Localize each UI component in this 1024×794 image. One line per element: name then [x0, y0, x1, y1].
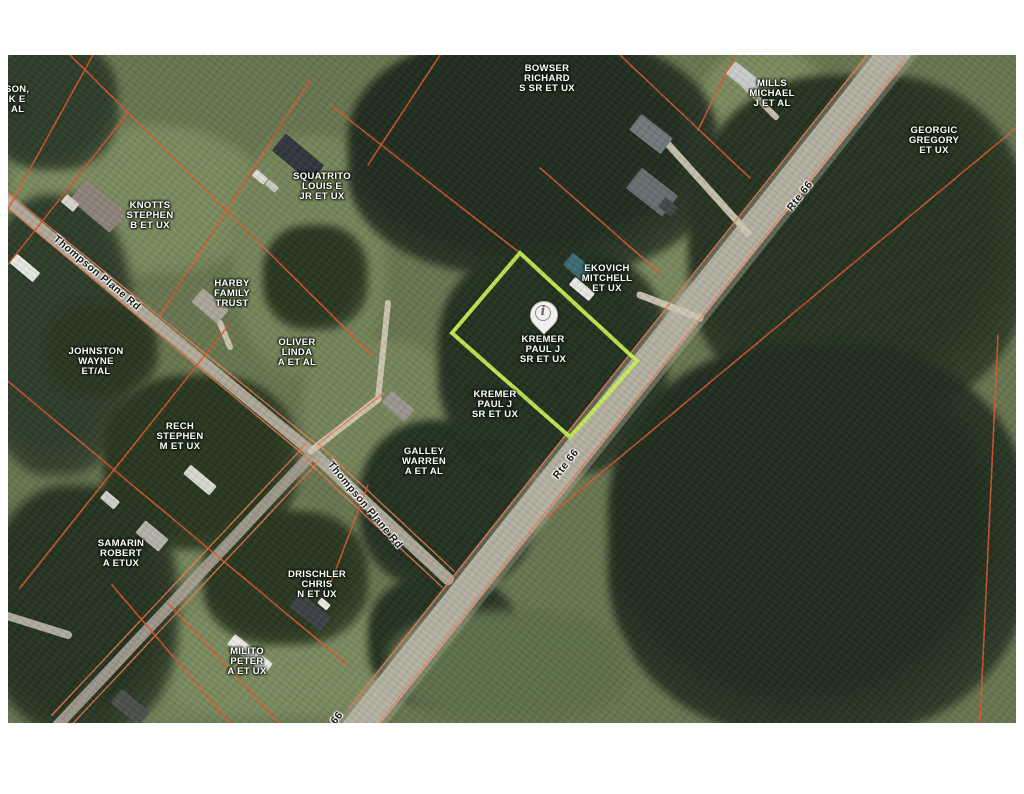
- owner-label-knotts: KNOTTSSTEPHENB ET UX: [127, 201, 174, 231]
- owner-label-samarin: SAMARINROBERTA ETUX: [98, 539, 144, 569]
- owner-label-oliver: OLIVERLINDAA ET AL: [278, 338, 316, 368]
- owner-label-bowser: BOWSERRICHARDS SR ET UX: [519, 64, 575, 94]
- building-squatrito-car-1: [252, 169, 269, 185]
- building-bowser-house-1: [629, 114, 673, 154]
- road-stub-northeast: [311, 399, 378, 451]
- parcel-boundary-line-6: [330, 105, 520, 253]
- road-bowser-driveway: [658, 133, 748, 233]
- road-oliver-driveway: [378, 303, 388, 399]
- road-edge-line-8: [317, 393, 384, 445]
- parcel-boundary-line-12: [368, 55, 440, 165]
- road-thompson-upper: [8, 193, 313, 453]
- owner-label-mills: MILLSMICHAELJ ET AL: [749, 79, 794, 109]
- building-squatrito-car-2: [265, 179, 279, 193]
- owner-label-harby: HARBYFAMILYTRUST: [214, 279, 250, 309]
- building-rech-mobile-home: [183, 464, 217, 495]
- owner-label-johnston: JOHNSTONWAYNEET/AL: [68, 347, 123, 377]
- building-southwest-house: [110, 689, 149, 723]
- road-west-spur: [8, 613, 68, 635]
- parcel-boundary-line-9: [698, 55, 735, 130]
- owner-label-kremer-pin: KREMERPAUL JSR ET UX: [520, 335, 566, 365]
- building-shed: [100, 490, 120, 509]
- building-johnston-trailer: [10, 254, 41, 282]
- owner-label-kremer-2: KREMERPAUL JSR ET UX: [472, 390, 518, 420]
- owner-label-rech: RECHSTEPHENM ET UX: [157, 422, 204, 452]
- road-edge-line-6: [52, 443, 307, 715]
- owner-label-drischler: DRISCHLERCHRISN ET UX: [288, 570, 346, 600]
- pin-info-icon: i: [530, 304, 556, 319]
- parcel-boundary-line-11: [980, 335, 998, 723]
- owner-label-ekovich: EKOVICHMITCHELLET UX: [582, 264, 632, 294]
- road-branch-southwest: [58, 453, 313, 723]
- owner-label-squatrito: SQUATRITOLOUIS EJR ET UX: [293, 172, 351, 202]
- parcel-map[interactable]: HNSON,ARK EET ALKNOTTSSTEPHENB ET UXBOWS…: [8, 55, 1016, 723]
- parcel-boundary-line-5: [8, 373, 348, 665]
- owner-label-johnson-partial: HNSON,ARK EET AL: [8, 85, 29, 115]
- map-pin[interactable]: i: [530, 301, 556, 339]
- owner-label-milito: MILITOPETERA ET UX: [227, 647, 266, 677]
- building-knotts-house: [70, 179, 127, 232]
- road-rte-66-shoulder: [342, 55, 912, 723]
- owner-label-galley: GALLEYWARRENA ET AL: [402, 447, 446, 477]
- owner-label-georgic: GEORGICGREGORYET UX: [909, 126, 959, 156]
- building-oliver-house: [381, 390, 414, 422]
